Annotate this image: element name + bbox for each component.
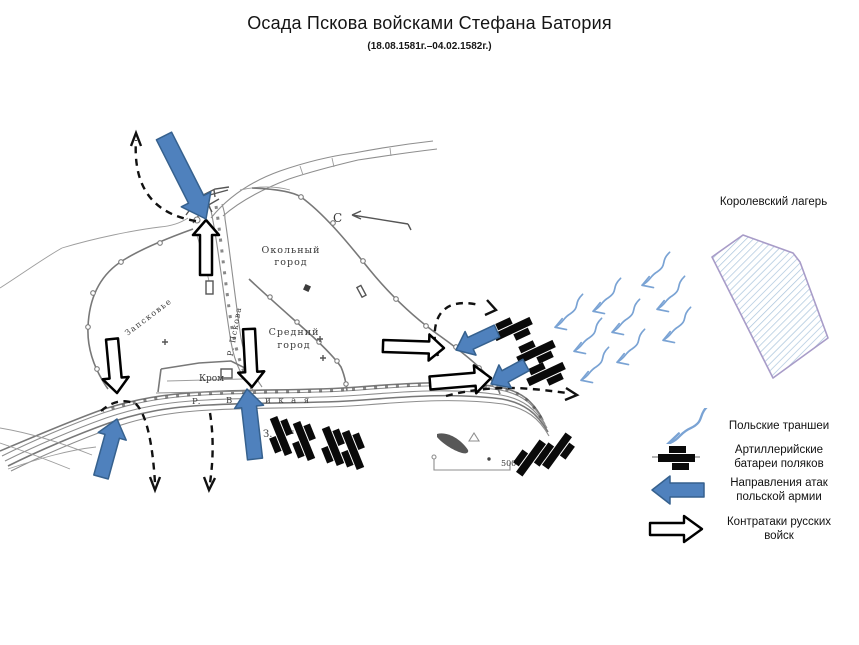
west-roads [0, 218, 188, 288]
polish-trenches-layer [549, 252, 699, 385]
label-velikaya-r: Р. [192, 397, 200, 407]
royal-camp-area [688, 226, 859, 388]
trench-wave [568, 318, 608, 351]
trench-wave [651, 276, 691, 309]
royal-camp: Королевский лагерь [688, 196, 859, 388]
zapskovye-wall [86, 229, 213, 389]
legend-label: Контратаки русских войск [718, 515, 840, 544]
legend-label: Артиллерийские батареи поляков [718, 443, 840, 472]
trench-arrowhead [610, 323, 623, 337]
polish-trench-icon [636, 408, 718, 444]
trench-wave [606, 299, 646, 332]
trench-arrowhead [591, 302, 604, 316]
trench-arrowhead [615, 353, 628, 367]
scale-value: 500 [501, 459, 516, 468]
label-sredny-1: Средний [269, 327, 320, 338]
russian-counterattack-arrow [193, 220, 219, 275]
trench-arrowhead [579, 371, 592, 385]
trench-arrowhead [655, 300, 668, 314]
dashed-route [210, 413, 213, 483]
polish-trench-arrow [611, 329, 653, 367]
siege-map-page: Осада Пскова войсками Стефана Батория (1… [0, 0, 859, 645]
royal-camp-label: Королевский лагерь [688, 196, 859, 208]
legend-label: Польские траншеи [718, 419, 840, 433]
label-pskova-river: Р. Пскова [226, 306, 244, 357]
polish-trench-arrow [587, 278, 629, 316]
scale-bar: 500 [432, 455, 516, 470]
legend-label: Направления атак польской армии [718, 476, 840, 505]
russian-counterattack-arrow [238, 329, 264, 387]
label-sredny-2: город [277, 340, 310, 351]
polish-attack-arrow [491, 359, 529, 388]
artillery-battery-icon [636, 441, 718, 473]
russian-counterattack-arrow [383, 335, 444, 361]
trench-arrowhead [661, 331, 674, 345]
polish-trench-arrow [636, 252, 678, 290]
trench-wave [587, 278, 627, 311]
legend-item-polish-trenches: Польские траншеи [636, 408, 840, 444]
dashed-route-arrowhead [485, 300, 496, 315]
polish-trench-arrow [651, 276, 693, 314]
dashed-route-arrowhead [131, 133, 141, 146]
polish-trench-arrow [568, 318, 610, 356]
north-indicator: С [333, 211, 411, 230]
trench-arrowhead [553, 318, 566, 332]
trench-arrowhead [640, 276, 653, 290]
polish-attack-arrow [456, 325, 500, 355]
label-okolny-2: город [274, 257, 307, 268]
north-label: С [333, 211, 342, 225]
polish-attack-arrow-icon [636, 473, 718, 507]
legend-item-artillery-batteries: Артиллерийские батареи поляков [636, 441, 840, 473]
polish-trench-arrow [549, 294, 591, 332]
dashed-route-arrowhead [565, 388, 577, 400]
trench-wave [611, 329, 651, 362]
pond [437, 433, 479, 453]
polish-attack-arrow [94, 419, 126, 479]
russian-counterattack-arrow [103, 338, 129, 393]
battery-symbol [285, 418, 322, 464]
trench-arrowhead [572, 342, 585, 356]
trench-wave [549, 294, 589, 327]
label-krom: Кром [199, 374, 224, 384]
polish-trench-arrow [606, 299, 648, 337]
royal-camp-polygon [712, 235, 828, 378]
label-zapskovye: Запсковье [123, 296, 174, 337]
legend-item-polish-attacks: Направления атак польской армии [636, 473, 840, 507]
polish-attack-arrow [156, 132, 210, 219]
battery-symbol [536, 428, 579, 474]
legend-item-russian-counterattacks: Контратаки русских войск [636, 511, 840, 547]
battery-symbol [510, 435, 553, 481]
trench-wave [636, 252, 676, 285]
upper-river-braid [211, 141, 437, 218]
russian-counterattack-arrow-icon [636, 511, 718, 547]
label-okolny-1: Окольный [262, 245, 321, 256]
